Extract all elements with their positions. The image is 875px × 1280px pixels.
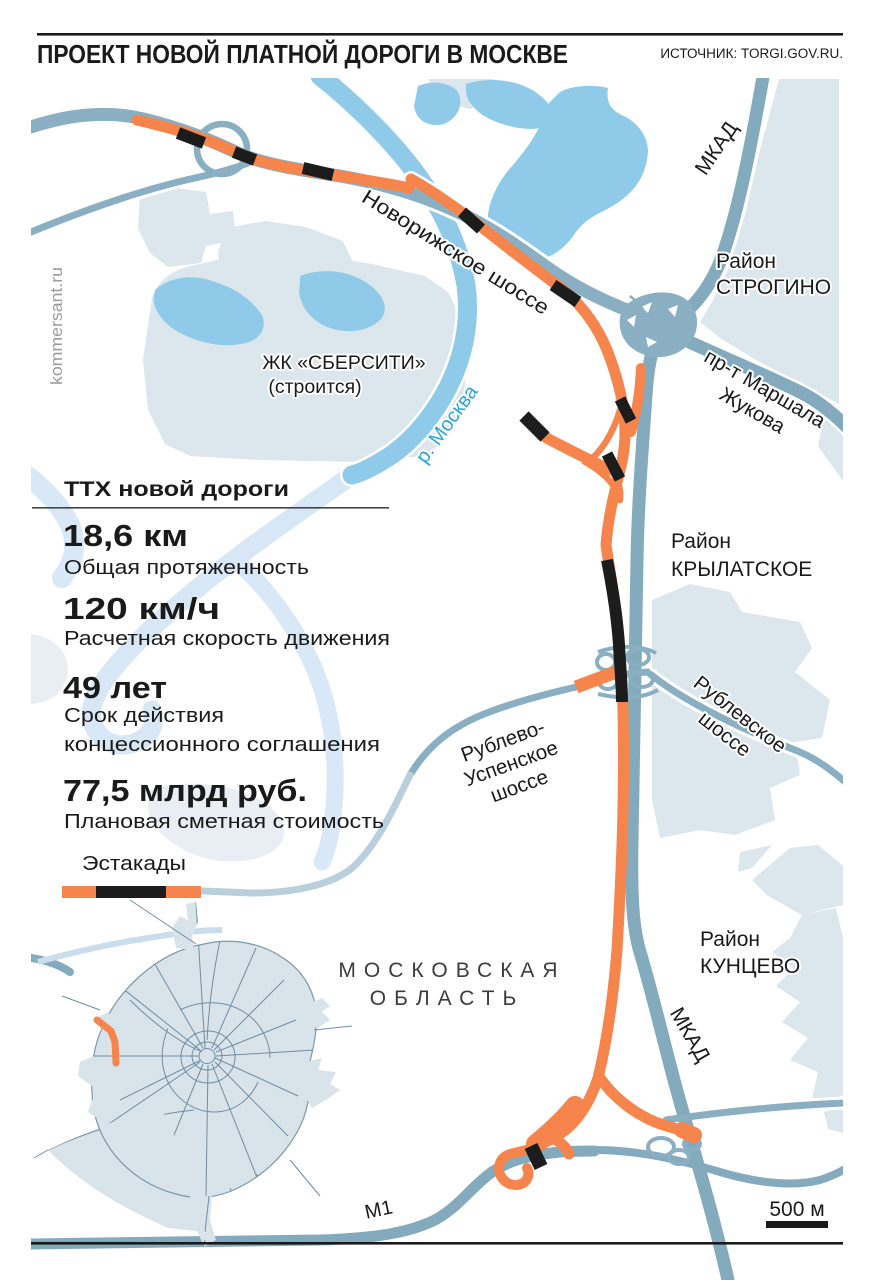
svg-text:ПРОЕКТ НОВОЙ ПЛАТНОЙ ДОРОГИ В: ПРОЕКТ НОВОЙ ПЛАТНОЙ ДОРОГИ В МОСКВЕ <box>37 39 568 69</box>
svg-text:Расчетная скорость движения: Расчетная скорость движения <box>64 627 390 650</box>
svg-text:ЖК «СБЕРСИТИ»: ЖК «СБЕРСИТИ» <box>262 352 425 374</box>
svg-text:120 км/ч: 120 км/ч <box>63 591 220 626</box>
svg-text:М1: М1 <box>363 1196 395 1223</box>
svg-text:Общая протяженность: Общая протяженность <box>64 556 309 579</box>
svg-text:Эстакады: Эстакады <box>82 852 186 875</box>
svg-text:Плановая сметная стоимость: Плановая сметная стоимость <box>64 810 384 833</box>
svg-text:ТТХ новой дороги: ТТХ новой дороги <box>64 477 289 501</box>
svg-text:концессионного соглашения: концессионного соглашения <box>64 733 380 756</box>
svg-text:18,6 км: 18,6 км <box>63 518 188 553</box>
svg-text:КУНЦЕВО: КУНЦЕВО <box>700 955 800 978</box>
svg-text:Район: Район <box>716 250 776 273</box>
svg-text:СТРОГИНО: СТРОГИНО <box>716 276 831 299</box>
svg-text:77,5 млрд руб.: 77,5 млрд руб. <box>63 773 307 808</box>
svg-text:kommersant.ru: kommersant.ru <box>47 267 66 385</box>
svg-text:ИСТОЧНИК: TORGI.GOV.RU.: ИСТОЧНИК: TORGI.GOV.RU. <box>660 46 843 61</box>
svg-text:Срок действия: Срок действия <box>64 704 224 727</box>
svg-text:МКАД: МКАД <box>691 118 743 179</box>
svg-text:ОБЛАСТЬ: ОБЛАСТЬ <box>370 987 525 1010</box>
svg-text:КРЫЛАТСКОЕ: КРЫЛАТСКОЕ <box>671 558 812 581</box>
svg-text:49 лет: 49 лет <box>63 670 167 705</box>
svg-text:(строится): (строится) <box>268 376 361 398</box>
svg-text:500 м: 500 м <box>769 1198 824 1221</box>
svg-text:Район: Район <box>671 530 731 553</box>
svg-text:МОСКОВСКАЯ: МОСКОВСКАЯ <box>338 959 565 982</box>
svg-text:Район: Район <box>700 928 760 951</box>
